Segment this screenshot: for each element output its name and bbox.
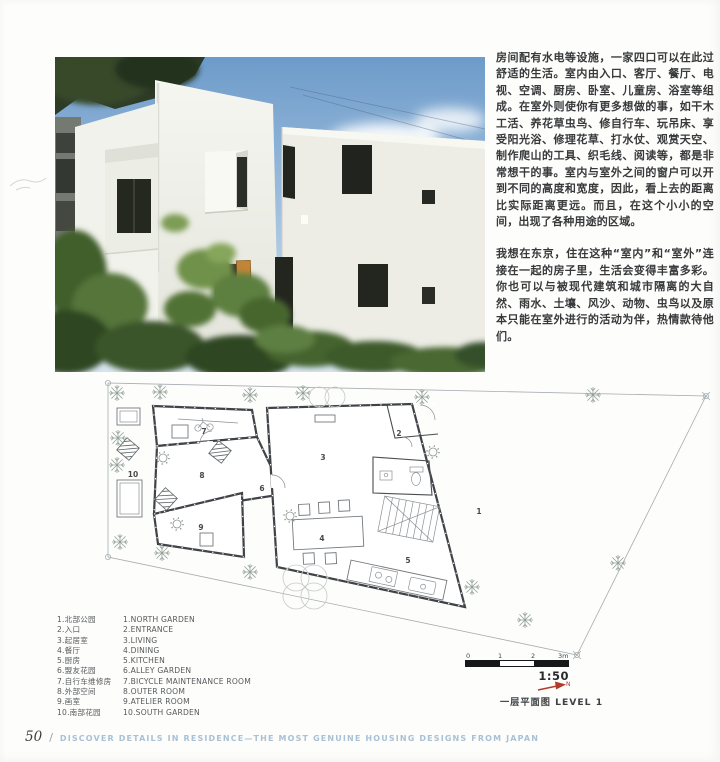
svg-text:N: N	[566, 681, 570, 688]
room-label-1: 1	[476, 507, 481, 516]
room-label-6: 6	[259, 484, 264, 493]
window-upper	[342, 145, 372, 194]
scan-artifact	[6, 160, 50, 200]
scale-tick-labels: 0 1 2 3m	[465, 652, 569, 660]
legend-item: 2.入口2.ENTRANCE	[57, 625, 251, 635]
paragraph-1: 房间配有水电等设施，一家四口可以在此过舒适的生活。室内由入口、客厅、餐厅、电视、…	[496, 50, 714, 230]
legend-item: 3.起居室3.LIVING	[57, 636, 251, 646]
page-footer: 50 / DISCOVER DETAILS IN RESIDENCE—THE M…	[25, 729, 539, 745]
room-label-5: 5	[405, 556, 410, 565]
room-label-7: 7	[201, 427, 206, 436]
right-building	[267, 404, 465, 607]
house-right-volume	[282, 127, 485, 362]
legend-item: 1.北部公园1.NORTH GARDEN	[57, 615, 251, 625]
north-arrow-icon: N	[536, 679, 570, 695]
tower-window	[237, 157, 247, 207]
tv-cabinet	[315, 415, 335, 422]
plan-legend: 1.北部公园1.NORTH GARDEN 2.入口2.ENTRANCE 3.起居…	[57, 615, 251, 718]
book-page: 房间配有水电等设施，一家四口可以在此过舒适的生活。室内由入口、客厅、餐厅、电视、…	[0, 0, 720, 762]
atelier-table	[200, 533, 213, 546]
legend-item: 7.自行车维修房7.BICYCLE MAINTENANCE ROOM	[57, 677, 251, 687]
paragraph-2: 我想在东京，住在这种“室内”和“室外”连接在一起的房子里，生活会变得丰富多彩。你…	[496, 246, 714, 344]
room-label-3: 3	[320, 453, 325, 462]
room-label-8: 8	[199, 471, 204, 480]
south-garden-pond	[117, 480, 142, 517]
workbench	[172, 425, 188, 438]
page-number: 50	[25, 729, 42, 745]
legend-item: 9.画室9.ATELIER ROOM	[57, 697, 251, 707]
legend-item: 6.盟友花园6.ALLEY GARDEN	[57, 666, 251, 676]
legend-item: 5.厨房5.KITCHEN	[57, 656, 251, 666]
left-building	[153, 406, 284, 557]
room-label-4: 4	[319, 534, 324, 543]
room-label-2: 2	[396, 429, 401, 438]
legend-item: 4.餐厅4.DINING	[57, 646, 251, 656]
footer-title: DISCOVER DETAILS IN RESIDENCE—THE MOST G…	[60, 734, 539, 743]
footer-separator: /	[49, 731, 53, 744]
legend-item: 8.外部空间8.OUTER ROOM	[57, 687, 251, 697]
plan-caption: 一层平面图 LEVEL 1	[500, 694, 603, 708]
house-photo	[55, 57, 485, 372]
window-small-lower	[422, 287, 435, 304]
window-lower	[358, 264, 388, 307]
legend-item: 10.南部花园10.SOUTH GARDEN	[57, 708, 251, 718]
window-small-upper	[422, 190, 435, 204]
article-text: 房间配有水电等设施，一家四口可以在此过舒适的生活。室内由入口、客厅、餐厅、电视、…	[496, 50, 714, 361]
garden-structures	[117, 408, 142, 517]
scale-rule	[465, 660, 569, 667]
room-label-9: 9	[198, 523, 203, 532]
room-label-10: 10	[128, 470, 138, 479]
